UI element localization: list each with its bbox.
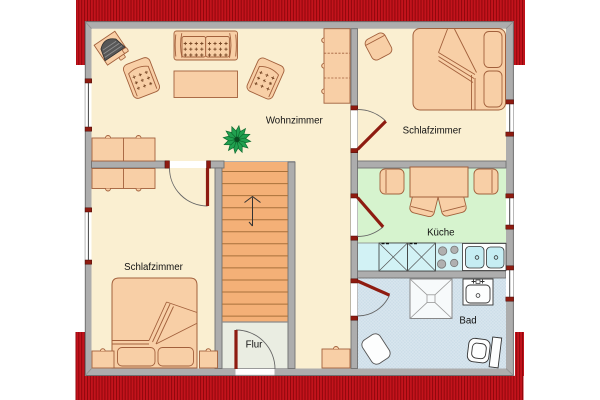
svg-text:Schlafzimmer: Schlafzimmer xyxy=(124,262,183,273)
svg-text:Flur: Flur xyxy=(246,340,263,351)
svg-text:Küche: Küche xyxy=(427,228,454,239)
svg-text:Wohnzimmer: Wohnzimmer xyxy=(266,116,324,127)
svg-text:Bad: Bad xyxy=(459,315,476,326)
svg-text:Schlafzimmer: Schlafzimmer xyxy=(403,125,462,136)
